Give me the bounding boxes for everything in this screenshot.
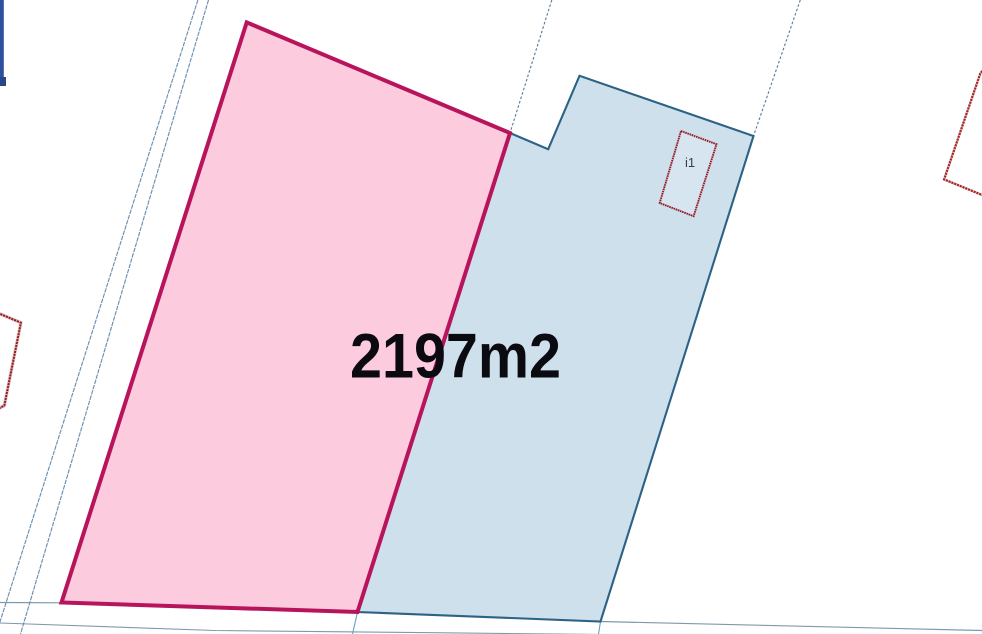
svg-text:2197m2: 2197m2 [350, 322, 561, 392]
svg-text:i1: i1 [685, 155, 695, 170]
